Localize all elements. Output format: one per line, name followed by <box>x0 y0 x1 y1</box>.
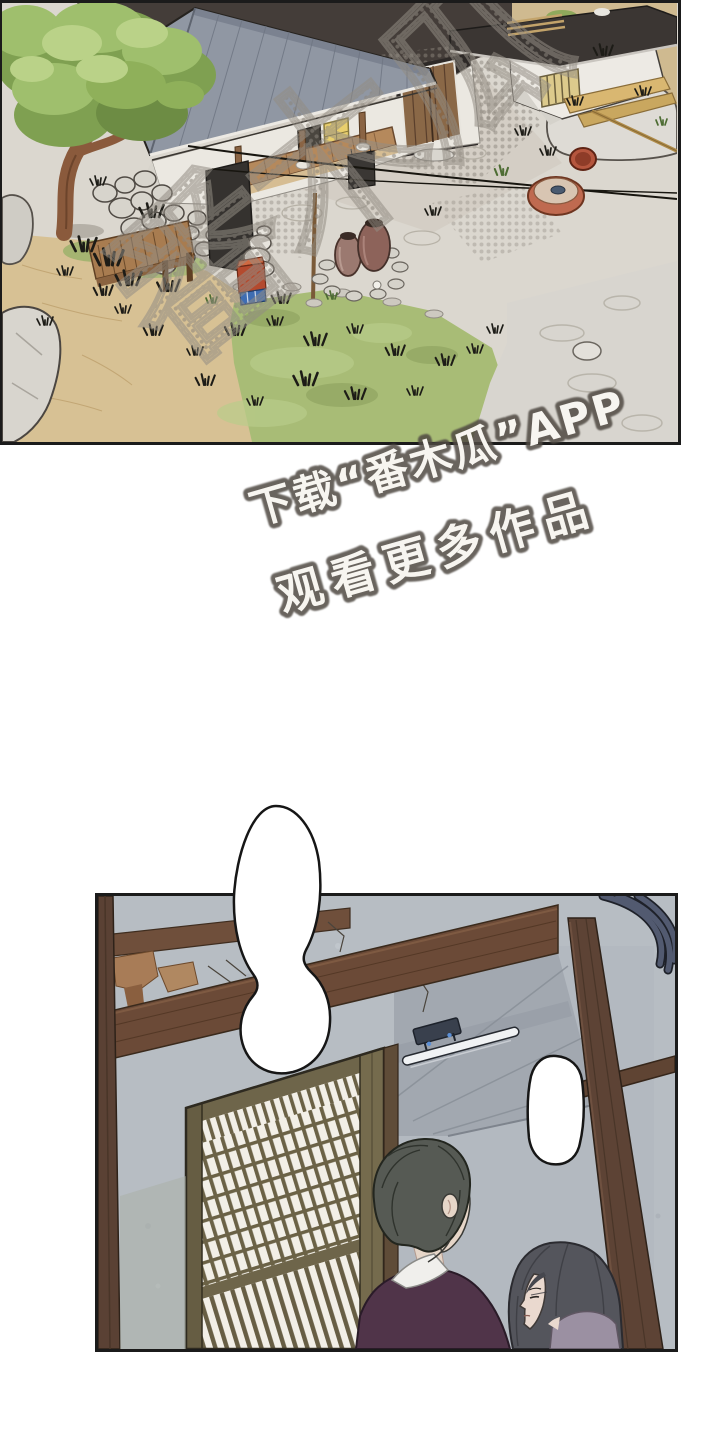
watermark-line2-outline: 观看更多作品 <box>271 481 603 623</box>
lower-wall-shade <box>120 1176 186 1349</box>
interior-panel <box>95 893 678 1352</box>
courtyard-illustration: 番木瓜 <box>2 3 677 442</box>
interior-illustration <box>98 896 675 1349</box>
path-edge-rock <box>573 342 601 360</box>
watermark-line2: 观看更多作品 <box>271 481 603 623</box>
courtyard-panel: 番木瓜 <box>0 0 681 445</box>
woman-lips <box>524 1316 530 1317</box>
roof-stone <box>594 8 610 16</box>
small-white-object <box>373 281 381 289</box>
